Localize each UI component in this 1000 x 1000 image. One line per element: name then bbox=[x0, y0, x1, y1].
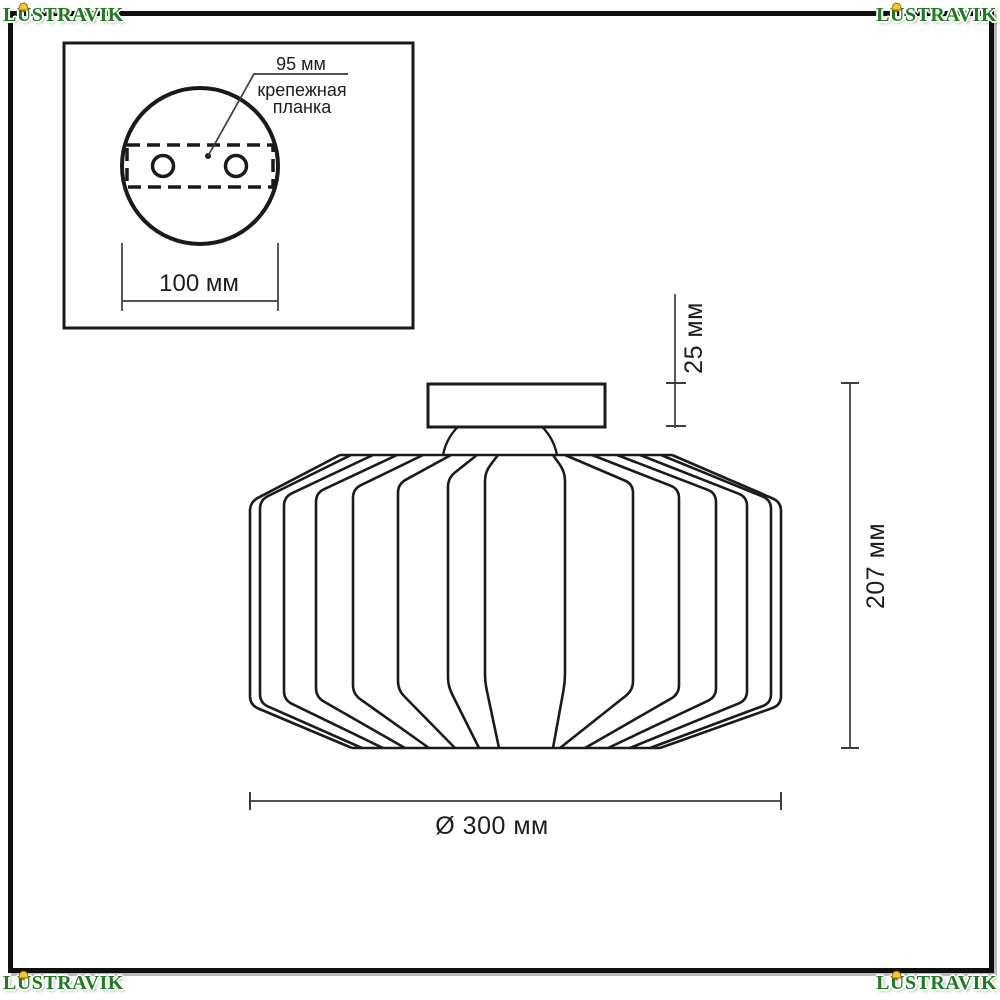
lamp-icon bbox=[16, 969, 31, 984]
lamp-icon bbox=[16, 1, 31, 16]
mounting-plate-inset: 95 мм крепежная планка 100 мм bbox=[64, 43, 413, 328]
dimension-label-100: 100 мм bbox=[159, 270, 239, 297]
dimension-label-300: Ø 300 мм bbox=[435, 812, 548, 840]
lustravik-watermark-top-left: LUSTRAVIK bbox=[3, 4, 124, 27]
dimension-label-25: 25 мм bbox=[680, 302, 708, 374]
lamp-icon bbox=[889, 969, 904, 984]
lustravik-watermark-bottom-right: LUSTRAVIK bbox=[876, 972, 997, 995]
dimension-label-207: 207 мм bbox=[862, 523, 890, 609]
technical-drawing: 95 мм крепежная планка 100 мм bbox=[0, 0, 1000, 1000]
lustravik-watermark-bottom-left: LUSTRAVIK bbox=[3, 972, 124, 995]
dimension-label-95: 95 мм bbox=[276, 54, 326, 74]
lustravik-watermark-top-right: LUSTRAVIK bbox=[876, 4, 997, 27]
lamp-icon bbox=[889, 1, 904, 16]
ceiling-canopy-rect bbox=[428, 384, 605, 427]
lamp-dimension-diagram-page: 95 мм крепежная планка 100 мм bbox=[0, 0, 1000, 1000]
plate-label-line2: планка bbox=[273, 97, 332, 117]
